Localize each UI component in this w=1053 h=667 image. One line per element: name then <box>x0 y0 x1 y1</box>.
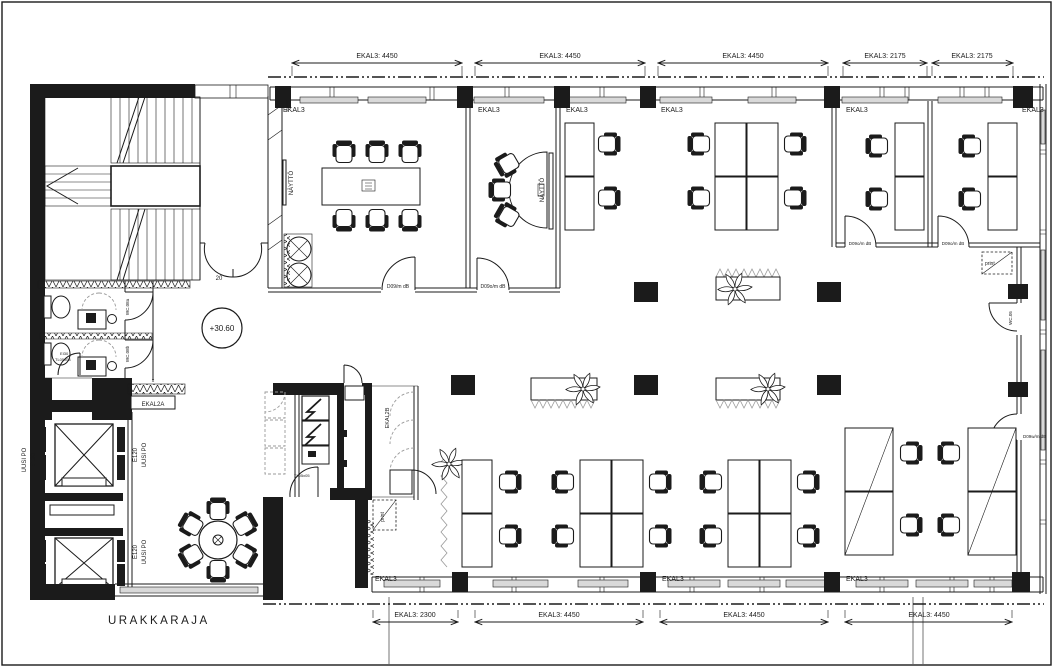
dim-top-2: EKAL3: 4450 <box>539 53 580 60</box>
core-door-type-label: TL05x05 <box>294 473 310 478</box>
wall-label-top-5: EKAL3 <box>846 107 868 114</box>
conference-door-label: D09/m dB <box>387 284 410 290</box>
office2-door-label: D09o/m dB <box>942 241 965 246</box>
fire-door-class-label: EI30 <box>60 351 69 356</box>
round-table-center-glyph <box>213 535 223 545</box>
level-marker-value: +30.60 <box>210 324 235 333</box>
elevator1-right-label-e120: E120 <box>133 447 139 462</box>
contract-boundary-label: URAKKARAJA <box>108 615 210 627</box>
office1-door-label: D09o/m dB <box>849 241 872 246</box>
print-1-label: print <box>380 512 386 522</box>
elevator1-left-label-e120: E120 <box>31 452 37 467</box>
dim-bottom-1: EKAL3: 2300 <box>394 612 435 619</box>
wc-room-label-top: WC.08a <box>125 298 130 315</box>
elevator1-left-label-uusi-po: UUSI PO <box>22 447 28 472</box>
print-2-label: print <box>985 261 995 267</box>
stair-door-width-label: 20 <box>216 276 223 282</box>
wall-label-top-2: EKAL3 <box>478 107 500 114</box>
dim-top-3: EKAL3: 4450 <box>722 53 763 60</box>
dim-bottom-2: EKAL3: 4450 <box>538 612 579 619</box>
right-wall-door-label: D09w/m dB <box>1023 434 1046 439</box>
wall-label-top-4: EKAL3 <box>661 107 683 114</box>
wall-label-bottom-1: EKAL3 <box>375 576 397 583</box>
wall-label-bottom-2: EKAL3 <box>662 576 684 583</box>
dim-top-1: EKAL3: 4450 <box>356 53 397 60</box>
dim-top-5: EKAL3: 2175 <box>951 53 992 60</box>
floor-plan-canvas: 20 WC.08a WC.08b EI30 TL05x08 x EKAL2A <box>0 0 1053 667</box>
dim-bottom-4: EKAL3: 4450 <box>908 612 949 619</box>
conference-table <box>322 168 420 205</box>
wall-label-top-3: EKAL3 <box>566 107 588 114</box>
electrical-riser <box>302 396 329 464</box>
display-label-conference: NÄYTTÖ <box>288 171 295 196</box>
elevator1-right-label-uusi-po: UUSI PO <box>142 442 148 467</box>
toilet-1 <box>44 296 70 318</box>
fire-door-type-label: TL05x08 <box>55 357 71 362</box>
elevator2-right-label-uusi-po: UUSI PO <box>142 539 148 564</box>
wall-label-top-6: EKAL3 <box>1022 107 1044 114</box>
wc-right-label: WC.05 <box>1008 311 1013 325</box>
wc-room-label-bottom: WC.08b <box>125 345 130 362</box>
display-label-meeting: NÄYTTÖ <box>539 178 546 203</box>
shaft-b-label: EKAL2B <box>385 407 391 428</box>
dim-top-4: EKAL3: 2175 <box>864 53 905 60</box>
shaft-a-label: EKAL2A <box>142 402 165 408</box>
meeting-door-label: D09o/m dB <box>480 284 506 290</box>
dim-bottom-3: EKAL3: 4450 <box>723 612 764 619</box>
elevator2-right-label-e120: E120 <box>133 544 139 559</box>
wall-label-bottom-3: EKAL3 <box>846 576 868 583</box>
wall-label-top-1: EKAL3 <box>283 107 305 114</box>
